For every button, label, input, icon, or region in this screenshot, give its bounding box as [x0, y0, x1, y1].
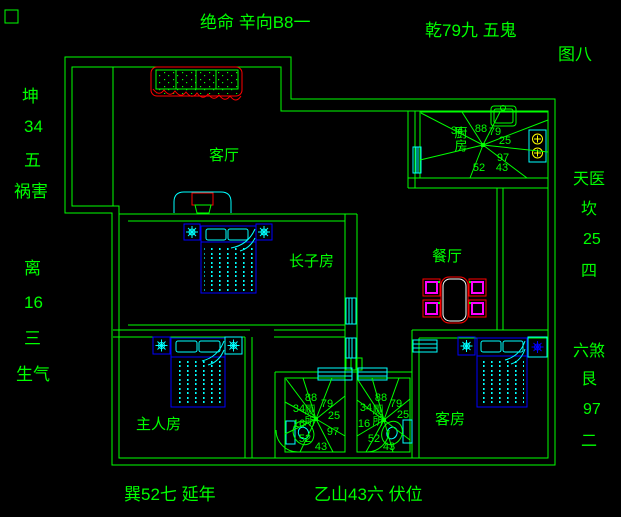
left-annotation: 祸害 — [14, 182, 48, 201]
compass-number: 43 — [315, 441, 327, 453]
room-label-bath-left: 厕所 — [303, 404, 316, 427]
tv-screen — [192, 193, 213, 205]
master-right-wall — [245, 337, 252, 458]
nightstand-star-icon — [186, 226, 198, 238]
pillow — [176, 341, 197, 352]
corner-marker — [5, 10, 18, 23]
compass-number: 52 — [368, 433, 380, 445]
compass-number: 97 — [327, 426, 339, 438]
bed-master — [171, 338, 225, 407]
compass-number: 43 — [383, 441, 395, 453]
right-annotation: 二 — [581, 433, 597, 450]
east-bedroom-wall — [345, 214, 357, 452]
compass-number: 43 — [496, 162, 508, 174]
room-label-dining: 餐厅 — [432, 248, 462, 265]
tv-stand — [195, 205, 211, 213]
nightstand-star-icon — [258, 226, 270, 238]
dining-chair — [469, 300, 486, 317]
room-label-master: 主人房 — [136, 416, 181, 433]
compass-number: 79 — [321, 398, 333, 410]
dining-chair — [423, 279, 440, 296]
room-label-guest: 客房 — [435, 411, 465, 428]
nightstand-star-icon — [532, 341, 544, 353]
room-label-eldest-son: 长子房 — [289, 253, 334, 270]
compass-number: 25 — [499, 135, 511, 147]
left-annotation: 五 — [24, 151, 41, 170]
top-direction-label: 绝命 辛向B8一 — [200, 13, 311, 32]
pillow — [481, 341, 501, 352]
bottom-direction-label: 巽52七 延年 — [124, 485, 216, 504]
left-annotation: 离 — [24, 259, 41, 278]
compass-number: 52 — [299, 433, 311, 445]
figure-number-label: 图八 — [558, 45, 592, 64]
dining-table — [441, 277, 468, 323]
right-annotation: 六煞 — [573, 342, 605, 360]
dining-chair — [423, 300, 440, 317]
nightstand-star-icon — [228, 340, 240, 352]
right-annotation: 97 — [583, 401, 601, 418]
left-annotation: 坤 — [22, 87, 39, 106]
dining-east-wall — [497, 188, 503, 330]
nightstand-star-icon — [461, 340, 473, 352]
floorplan: 34 88 79 25 97 43 52 厨房 88 79 34 25 16 9… — [0, 0, 621, 517]
livingroom-bedroom-wall — [119, 214, 357, 221]
bedroom-window-upper — [346, 298, 356, 324]
planter-bay-window — [151, 67, 242, 100]
dining-set — [423, 277, 486, 323]
top-direction-label: 乾79九 五鬼 — [425, 21, 517, 40]
right-annotation: 天医 — [573, 171, 605, 188]
bed-guest — [477, 338, 527, 407]
pillow — [199, 341, 220, 352]
room-label-living: 客厅 — [209, 147, 239, 164]
compass-number: 25 — [328, 410, 340, 422]
nightstand-star-icon — [156, 340, 168, 352]
room-label-bath-right: 厕所 — [371, 404, 384, 427]
pillow — [206, 229, 226, 240]
cad-drawing-canvas[interactable]: 34 88 79 25 97 43 52 厨房 88 79 34 25 16 9… — [0, 0, 621, 517]
right-annotation: 25 — [583, 231, 601, 248]
compass-number: 88 — [475, 123, 487, 135]
dining-chair — [469, 279, 486, 296]
bottom-direction-label: 乙山43六 伏位 — [314, 485, 423, 504]
right-annotation: 四 — [581, 263, 597, 280]
room-label-kitchen: 厨房 — [453, 126, 468, 152]
compass-number: 25 — [397, 409, 409, 421]
right-annotation: 艮 — [581, 371, 597, 388]
left-annotation: 34 — [24, 117, 43, 136]
compass-number: 52 — [473, 162, 485, 174]
compass-number: 88 — [375, 392, 387, 404]
left-annotation: 生气 — [16, 365, 50, 384]
pillow — [228, 229, 248, 240]
bed-eldest-son — [201, 226, 256, 293]
bedroom-window-lower — [346, 338, 356, 358]
compass-bath-right: 88 79 34 25 16 52 43 厕所 — [357, 378, 410, 453]
left-annotation: 三 — [24, 329, 41, 348]
compass-bath-left: 88 79 34 25 16 97 52 43 厕所 — [285, 378, 345, 453]
kitchen-stove — [529, 130, 546, 162]
tv-cabinet — [174, 192, 231, 213]
right-annotation: 坎 — [581, 200, 597, 218]
master-top-wall — [113, 325, 345, 337]
guestroom-window — [413, 340, 437, 352]
compass-number: 16 — [358, 418, 370, 430]
compass-number: 88 — [305, 392, 317, 404]
left-annotation: 16 — [24, 293, 43, 312]
